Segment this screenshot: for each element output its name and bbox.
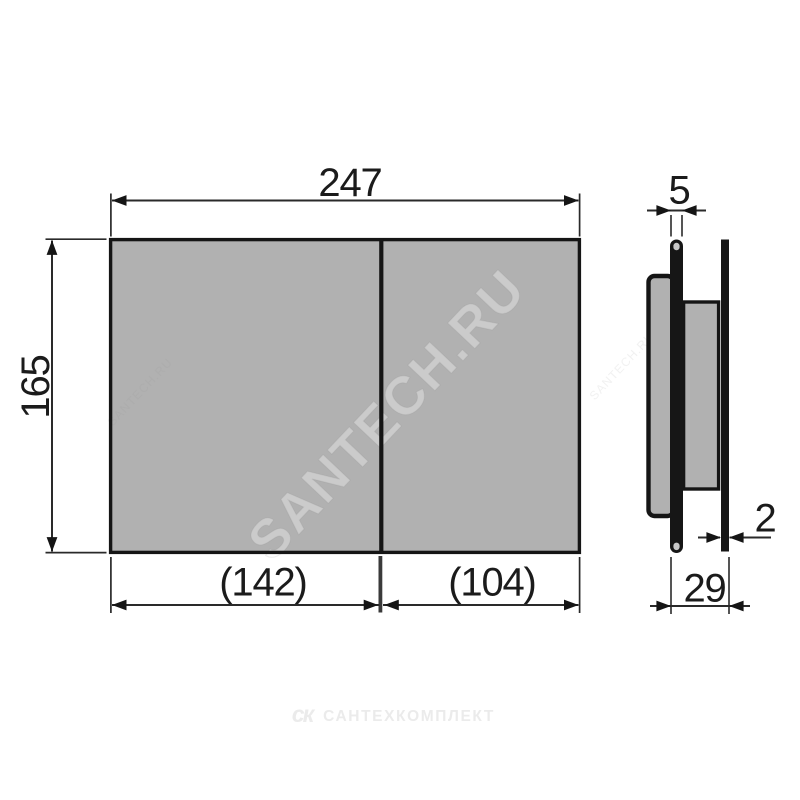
svg-text:2: 2 (754, 497, 775, 541)
svg-text:(142): (142) (219, 561, 306, 605)
svg-text:247: 247 (318, 161, 381, 205)
svg-text:29: 29 (683, 567, 725, 611)
svg-text:(104): (104) (448, 561, 535, 605)
svg-text:САНТЕХКОМПЛЕКТ: САНТЕХКОМПЛЕКТ (323, 708, 495, 725)
svg-text:ск: ск (292, 701, 316, 727)
svg-text:5: 5 (668, 169, 689, 213)
svg-text:165: 165 (14, 355, 58, 418)
